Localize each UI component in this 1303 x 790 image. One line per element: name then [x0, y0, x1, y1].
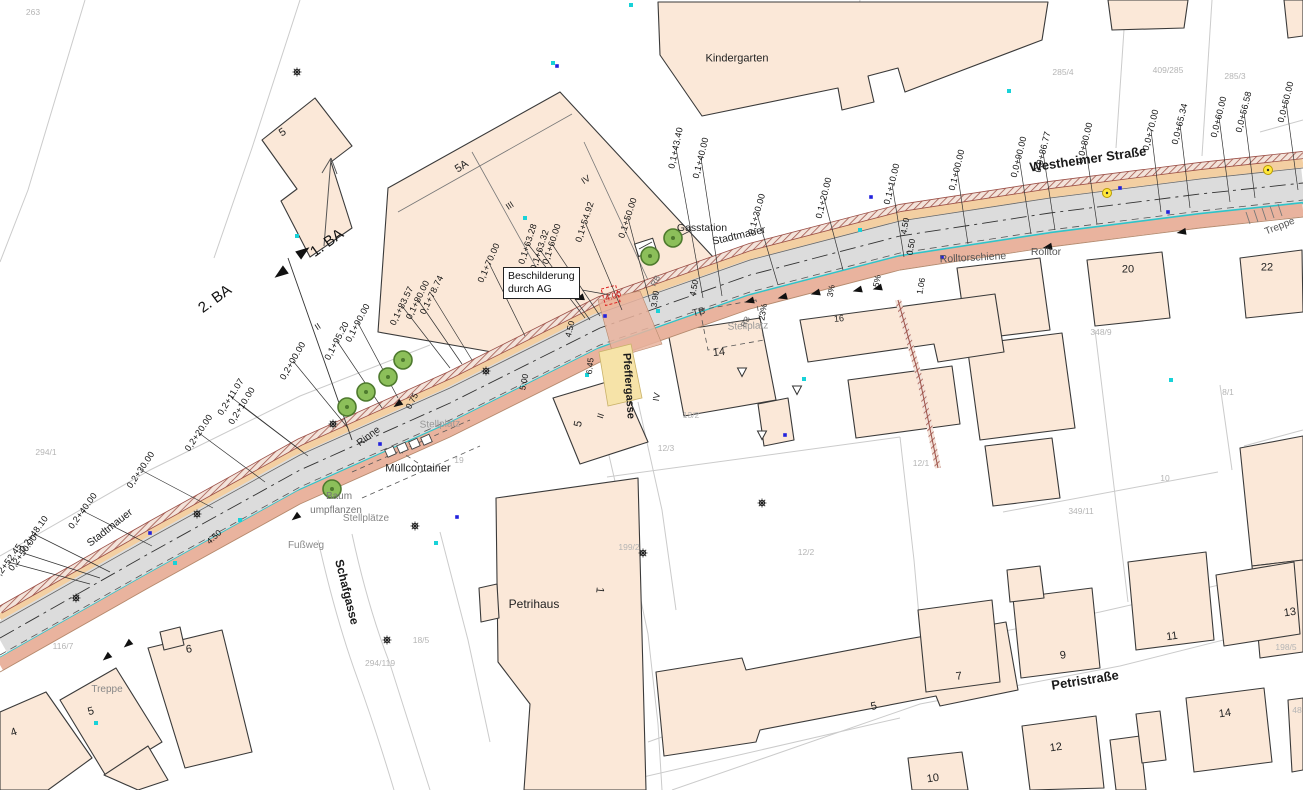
- annotation-label: RB: [650, 274, 662, 288]
- parcel-number: 199/2: [618, 543, 639, 552]
- parcel-number: 48: [1292, 706, 1301, 715]
- annotation-label: IV: [580, 174, 592, 186]
- annotation-label: Petrihaus: [509, 598, 560, 610]
- parcel-number: 263: [26, 8, 40, 17]
- station-label: 0,1+50.00: [617, 197, 639, 240]
- annotation-label: Treppe: [91, 685, 122, 695]
- house-number: 12: [1049, 742, 1063, 755]
- annotation-label: Rinne: [356, 425, 383, 449]
- parcel-number: 116/7: [53, 642, 74, 651]
- parcel-number: 12/2: [798, 548, 815, 557]
- parcel-number: 294/119: [365, 659, 395, 668]
- house-number: 14: [712, 347, 725, 359]
- sign-note-box: Beschilderung durch AG: [503, 267, 580, 299]
- house-number: 5: [573, 420, 585, 428]
- parcel-number: 285/4: [1052, 68, 1073, 77]
- station-label: 0,2+20.00: [184, 413, 215, 453]
- house-number: 4: [9, 727, 19, 739]
- parcel-number: 12/3: [658, 444, 675, 453]
- house-number: 14: [1218, 708, 1232, 721]
- parcel-number: 12/1: [913, 459, 930, 468]
- sign-note-line2: durch AG: [508, 283, 575, 296]
- house-number: 16: [834, 314, 845, 324]
- dimension-label: 1.06: [915, 277, 926, 295]
- house-number: 1: [593, 586, 605, 593]
- house-number: 7: [955, 671, 963, 683]
- annotation-label: 1. BA: [308, 226, 346, 260]
- parcel-number: 18/5: [413, 636, 430, 645]
- street-name: Petristraße: [1050, 668, 1119, 691]
- dimension-label: 4.50: [205, 528, 223, 545]
- annotation-label: Kindergarten: [706, 54, 769, 65]
- parcel-number: 294/1: [35, 448, 56, 457]
- station-label: 0,1+10.00: [883, 162, 902, 205]
- annotation-label: Gasstation: [677, 223, 727, 234]
- station-label: 0,0+60.00: [1210, 95, 1229, 138]
- parcel-number: 285/3: [1224, 72, 1245, 81]
- station-label: 0,1+54.92: [574, 201, 596, 244]
- station-label: 0,0+50.00: [1277, 80, 1296, 123]
- station-label: 0,1+00.00: [948, 148, 967, 191]
- parcel-number: 198/5: [1275, 643, 1296, 652]
- station-label: 0,1+70.00: [476, 242, 501, 284]
- parcel-number: 349/11: [1068, 507, 1093, 516]
- annotation-label: IV: [652, 392, 662, 402]
- house-number: 5A: [453, 159, 470, 176]
- annotation-label: TB: [692, 307, 707, 320]
- annotation-label: Treppe: [1264, 216, 1297, 237]
- dimension-label: 23%: [757, 303, 768, 321]
- dimension-label: 4.00: [604, 289, 622, 302]
- dimension-label: 0.50: [905, 238, 916, 256]
- annotation-label: Fußweg: [288, 541, 324, 551]
- dimension-label: 3%: [826, 284, 837, 298]
- annotation-label: Rolltorschiene: [939, 251, 1006, 265]
- annotation-label: Stadtmauer: [85, 507, 134, 549]
- station-label: 0,1+40.00: [692, 136, 711, 179]
- annotation-label: II: [313, 322, 322, 332]
- station-label: 0,2+30.00: [126, 450, 157, 490]
- annotation-label: Müllcontainer: [385, 464, 450, 475]
- parcel-number: 19: [454, 456, 463, 465]
- parcel-number: 8/1: [1222, 388, 1234, 397]
- annotation-label: II: [596, 412, 606, 420]
- dimension-label: 4.50: [688, 279, 700, 297]
- house-number: 13: [1283, 607, 1297, 620]
- street-name: Schafgasse: [333, 558, 361, 626]
- dimension-label: 0.75: [404, 392, 419, 411]
- dimension-label: 3.90: [650, 290, 661, 308]
- sign-note-line1: Beschilderung: [508, 270, 575, 283]
- house-number: 5: [87, 706, 96, 718]
- dimension-label: 5.00: [518, 373, 530, 391]
- site-plan-canvas[interactable]: 0,0+50.000,0+56.580,0+60.000,0+65.340,0+…: [0, 0, 1303, 790]
- house-number: 22: [1261, 263, 1273, 274]
- house-number: 20: [1122, 265, 1134, 276]
- annotation-label: Stellplatz: [420, 419, 461, 430]
- dimension-label: 6.45: [585, 357, 595, 374]
- house-number: 5: [870, 701, 878, 713]
- house-number: 9: [1059, 650, 1067, 662]
- street-name: Pfeffergasse: [620, 353, 636, 420]
- parcel-number: 348/9: [1090, 328, 1111, 337]
- annotation-label: Baum: [326, 492, 352, 502]
- station-label: 0,0+65.34: [1171, 102, 1190, 145]
- house-number: 10: [926, 773, 940, 786]
- dimension-label: 4.50: [899, 217, 910, 235]
- dimension-label: 5%: [872, 274, 883, 288]
- annotation-label: 2. BA: [196, 282, 234, 316]
- dimension-label: 4.50: [564, 320, 576, 338]
- station-label: 0,1+43.40: [667, 126, 685, 169]
- station-label: 0,2+40.00: [67, 491, 99, 530]
- house-number: 11: [1166, 631, 1179, 643]
- station-label: 0,1+20.00: [815, 176, 834, 219]
- annotation-label: Rolltor: [1031, 247, 1061, 258]
- station-label: 0,2+00.00: [279, 341, 308, 382]
- house-number: 6: [185, 644, 193, 656]
- station-label: 0,0+90.00: [1010, 135, 1029, 178]
- annotation-label: Stellplätze: [343, 514, 389, 524]
- labels-layer: 0,0+50.000,0+56.580,0+60.000,0+65.340,0+…: [0, 0, 1303, 790]
- house-number: 5: [277, 127, 288, 140]
- parcel-number: 409/285: [1153, 66, 1184, 75]
- parcel-number: 13/2: [683, 411, 700, 420]
- station-label: 0,0+56.58: [1235, 90, 1254, 133]
- annotation-label: III: [504, 200, 515, 212]
- parcel-number: 10: [1160, 474, 1169, 483]
